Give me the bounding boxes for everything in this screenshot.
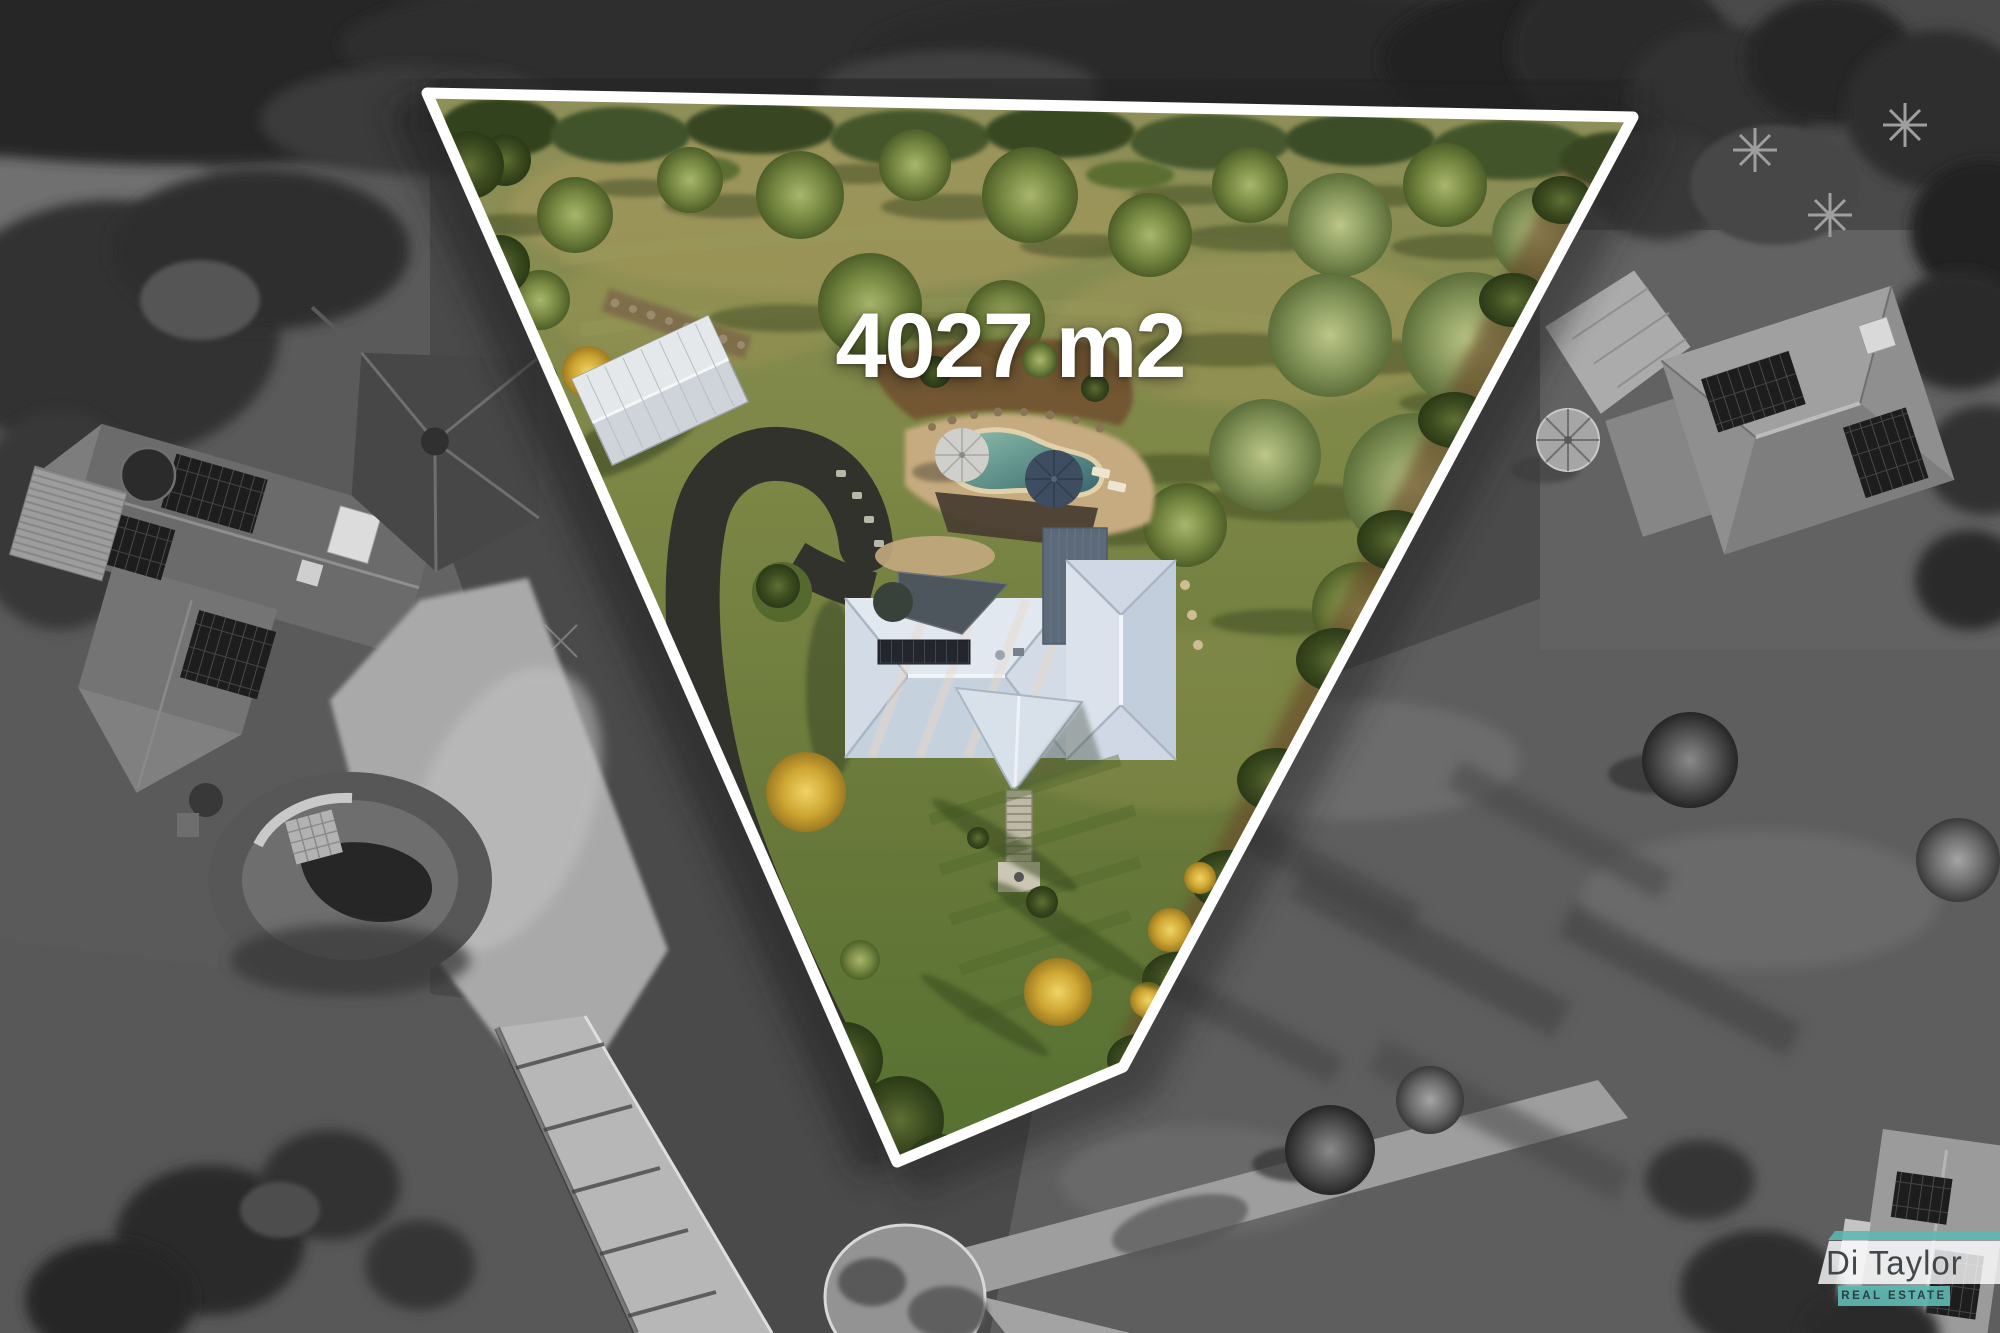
pool-umbrella-dark [1025,450,1083,508]
logo-accent-bar [1828,1231,2000,1240]
trampoline [121,448,175,502]
neighbor-pool-left [208,772,492,996]
aerial-property-photo: 4027 m2 Di Taylor REAL ESTATE [0,0,2000,1333]
agency-logo: Di Taylor REAL ESTATE [1818,1231,2000,1306]
logo-agency-name: Di Taylor [1818,1243,1963,1283]
courtyard-tree [873,582,913,622]
aerial-scene [0,0,2000,1333]
logo-name-band: Di Taylor [1818,1241,2000,1284]
land-area-label: 4027 m2 [820,300,1200,392]
logo-tagline-box: REAL ESTATE [1838,1286,1950,1306]
logo-tagline: REAL ESTATE [1841,1290,1946,1302]
solar-panels [878,640,970,664]
